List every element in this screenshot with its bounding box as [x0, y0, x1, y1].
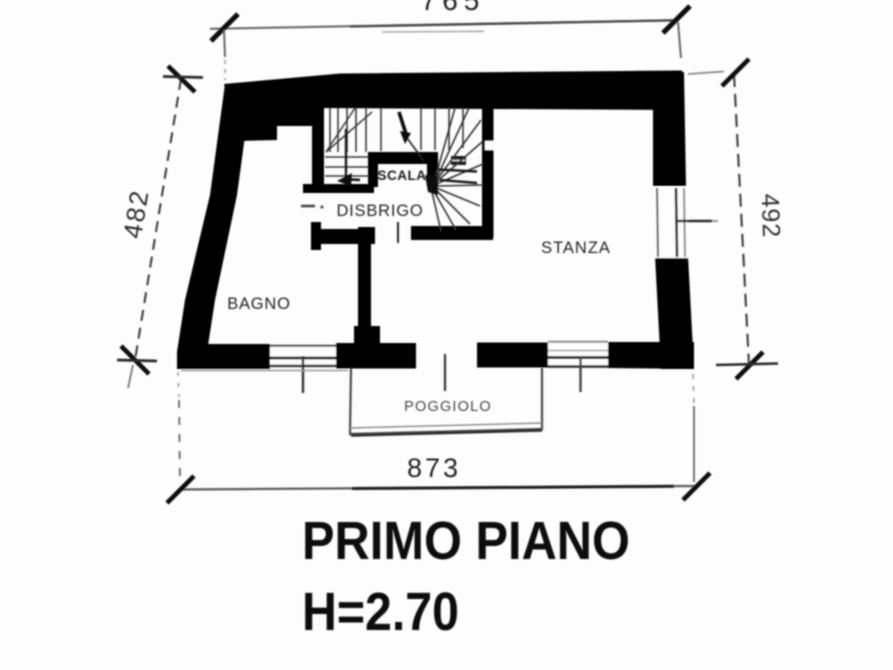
svg-text:DISBRIGO: DISBRIGO [336, 202, 423, 220]
svg-text:492: 492 [756, 193, 786, 239]
svg-text:873: 873 [407, 453, 461, 483]
svg-text:482: 482 [117, 187, 154, 240]
svg-text:SCALA: SCALA [378, 168, 427, 183]
svg-text:PRIMO PIANO: PRIMO PIANO [302, 511, 630, 571]
svg-text:BAGNO: BAGNO [227, 295, 291, 313]
svg-text:H=2.70: H=2.70 [302, 582, 459, 642]
svg-text:STANZA: STANZA [541, 239, 611, 257]
svg-text:765: 765 [421, 0, 486, 16]
svg-text:POGGIOLO: POGGIOLO [404, 399, 492, 415]
